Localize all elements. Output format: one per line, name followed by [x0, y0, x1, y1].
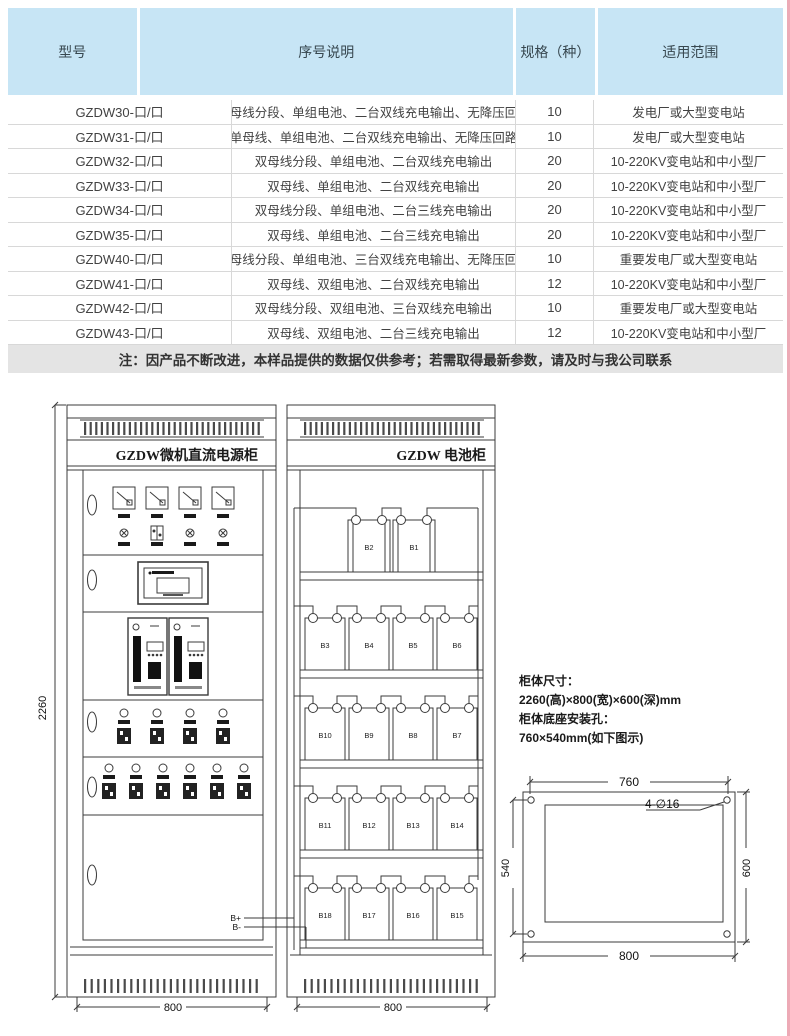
spec-count-cell: 20 — [516, 198, 594, 222]
battery-shelf: B18 B17 B16 B15 — [294, 876, 478, 940]
hole-callout-label: 4-∅16 — [645, 797, 680, 811]
column-header-application: 适用范围 — [598, 8, 783, 95]
model-cell: GZDW34-口/口 — [8, 198, 232, 222]
battery-label: B6 — [452, 641, 461, 650]
description-cell: 单母线分段、单组电池、二台双线充电输出、无降压回路 — [232, 100, 516, 124]
size-note-line: 柜体底座安装孔： — [519, 710, 759, 729]
description-cell: 双母线、双组电池、二台双线充电输出 — [232, 272, 516, 296]
model-cell: GZDW32-口/口 — [8, 149, 232, 173]
battery-cabinet-diagram: B2 B1 B3 B4 B5 B6 B10 B9 — [287, 405, 495, 997]
spec-count-cell: 20 — [516, 174, 594, 198]
size-note-line: 760×540mm(如下图示) — [519, 729, 759, 748]
description-cell: 双母线分段、单组电池、二台三线充电输出 — [232, 198, 516, 222]
battery-label: B8 — [408, 731, 417, 740]
battery-cabinet-title: GZDW 电池柜 — [396, 447, 486, 464]
description-cell: 双母线、双组电池、二台三线充电输出 — [232, 321, 516, 345]
battery-shelf: B11 B12 B13 B14 — [294, 786, 478, 850]
application-cell: 发电厂或大型变电站 — [594, 125, 783, 149]
power-width-label: 800 — [164, 1002, 182, 1014]
battery-label: B7 — [452, 731, 461, 740]
table-row: GZDW31-口/口 单母线、单组电池、二台双线充电输出、无降压回路 10 发电… — [8, 125, 783, 150]
monitor-unit — [138, 562, 208, 604]
base-right-dimension-label: 600 — [741, 859, 753, 877]
table-row: GZDW43-口/口 双母线、双组电池、二台三线充电输出 12 10-220KV… — [8, 321, 783, 346]
application-cell: 10-220KV变电站和中小型厂 — [594, 223, 783, 247]
spec-count-cell: 20 — [516, 223, 594, 247]
battery-label: B5 — [408, 641, 417, 650]
meter-panel — [113, 487, 234, 546]
table-row: GZDW33-口/口 双母线、单组电池、二台双线充电输出 20 10-220KV… — [8, 174, 783, 199]
battery-label: B1 — [409, 543, 418, 552]
model-cell: GZDW42-口/口 — [8, 296, 232, 320]
power-cabinet-diagram — [67, 405, 276, 997]
description-cell: 双母线分段、单组电池、二台双线充电输出 — [232, 149, 516, 173]
spec-count-cell: 10 — [516, 100, 594, 124]
column-header-spec-count: 规格（种） — [516, 8, 595, 95]
size-note-line: 2260(高)×800(宽)×600(深)mm — [519, 691, 759, 710]
breaker-panel-6 — [102, 764, 251, 799]
height-dimension-label: 2260 — [37, 696, 49, 720]
base-top-dimension-label: 760 — [619, 775, 639, 789]
description-cell: 双母线分段、双组电池、三台双线充电输出 — [232, 296, 516, 320]
battery-label: B4 — [364, 641, 373, 650]
application-cell: 10-220KV变电站和中小型厂 — [594, 272, 783, 296]
breaker-panel-4 — [117, 709, 230, 744]
table-row: GZDW42-口/口 双母线分段、双组电池、三台双线充电输出 10 重要发电厂或… — [8, 296, 783, 321]
battery-link-wires — [244, 918, 306, 948]
charger-modules — [128, 618, 208, 695]
size-note-line: 柜体尺寸： — [519, 672, 759, 691]
application-cell: 10-220KV变电站和中小型厂 — [594, 174, 783, 198]
battery-label: B18 — [318, 911, 331, 920]
battery-label: B11 — [319, 821, 332, 830]
model-cell: GZDW43-口/口 — [8, 321, 232, 345]
battery-width-label: 800 — [384, 1002, 402, 1014]
datasheet-page: { "table": { "headers": ["型号", "序号说明", "… — [0, 0, 790, 1036]
application-cell: 10-220KV变电站和中小型厂 — [594, 321, 783, 345]
model-cell: GZDW35-口/口 — [8, 223, 232, 247]
model-spec-table: 型号 序号说明 规格（种） 适用范围 GZDW30-口/口 单母线分段、单组电池… — [8, 8, 783, 345]
table-row: GZDW35-口/口 双母线、单组电池、二台三线充电输出 20 10-220KV… — [8, 223, 783, 248]
table-body: GZDW30-口/口 单母线分段、单组电池、二台双线充电输出、无降压回路 10 … — [8, 100, 783, 345]
table-row: GZDW32-口/口 双母线分段、单组电池、二台双线充电输出 20 10-220… — [8, 149, 783, 174]
base-left-dimension-label: 540 — [500, 859, 512, 877]
height-dimension — [52, 402, 66, 1000]
application-cell: 10-220KV变电站和中小型厂 — [594, 149, 783, 173]
table-row: GZDW41-口/口 双母线、双组电池、二台双线充电输出 12 10-220KV… — [8, 272, 783, 297]
application-cell: 发电厂或大型变电站 — [594, 100, 783, 124]
column-header-model: 型号 — [8, 8, 137, 95]
table-row: GZDW30-口/口 单母线分段、单组电池、二台双线充电输出、无降压回路 10 … — [8, 100, 783, 125]
b-minus-label: B- — [233, 922, 242, 932]
table-header-row: 型号 序号说明 规格（种） 适用范围 — [8, 8, 783, 95]
battery-label: B13 — [406, 821, 419, 830]
model-cell: GZDW33-口/口 — [8, 174, 232, 198]
base-mounting-diagram — [510, 776, 750, 962]
spec-count-cell: 12 — [516, 272, 594, 296]
battery-label: B3 — [320, 641, 329, 650]
description-cell: 单母线分段、单组电池、三台双线充电输出、无降压回路 — [232, 247, 516, 271]
application-cell: 重要发电厂或大型变电站 — [594, 247, 783, 271]
column-header-description: 序号说明 — [140, 8, 514, 95]
disclaimer-note: 注：因产品不断改进，本样品提供的数据仅供参考；若需取得最新参数，请及时与我公司联… — [8, 345, 783, 373]
description-cell: 单母线、单组电池、二台双线充电输出、无降压回路 — [232, 125, 516, 149]
spec-count-cell: 20 — [516, 149, 594, 173]
application-cell: 10-220KV变电站和中小型厂 — [594, 198, 783, 222]
battery-label: B15 — [450, 911, 463, 920]
battery-shelf: B2 B1 — [294, 508, 478, 572]
base-bottom-dimension-label: 800 — [619, 949, 639, 963]
battery-label: B16 — [406, 911, 419, 920]
model-cell: GZDW41-口/口 — [8, 272, 232, 296]
description-cell: 双母线、单组电池、二台双线充电输出 — [232, 174, 516, 198]
spec-count-cell: 10 — [516, 125, 594, 149]
spec-count-cell: 10 — [516, 247, 594, 271]
spec-count-cell: 10 — [516, 296, 594, 320]
table-row: GZDW34-口/口 双母线分段、单组电池、二台三线充电输出 20 10-220… — [8, 198, 783, 223]
battery-label: B2 — [364, 543, 373, 552]
table-row: GZDW40-口/口 单母线分段、单组电池、三台双线充电输出、无降压回路 10 … — [8, 247, 783, 272]
model-cell: GZDW40-口/口 — [8, 247, 232, 271]
description-cell: 双母线、单组电池、二台三线充电输出 — [232, 223, 516, 247]
cabinet-size-notes: 柜体尺寸： 2260(高)×800(宽)×600(深)mm 柜体底座安装孔： 7… — [519, 672, 759, 748]
battery-shelf: B3 B4 B5 B6 — [294, 606, 478, 670]
model-cell: GZDW30-口/口 — [8, 100, 232, 124]
spec-count-cell: 12 — [516, 321, 594, 345]
battery-label: B14 — [450, 821, 463, 830]
battery-label: B17 — [362, 911, 375, 920]
battery-label: B9 — [364, 731, 373, 740]
application-cell: 重要发电厂或大型变电站 — [594, 296, 783, 320]
battery-label: B10 — [318, 731, 331, 740]
battery-label: B12 — [362, 821, 375, 830]
power-cabinet-title: GZDW微机直流电源柜 — [116, 447, 258, 464]
battery-shelf: B10 B9 B8 B7 — [294, 696, 478, 760]
model-cell: GZDW31-口/口 — [8, 125, 232, 149]
